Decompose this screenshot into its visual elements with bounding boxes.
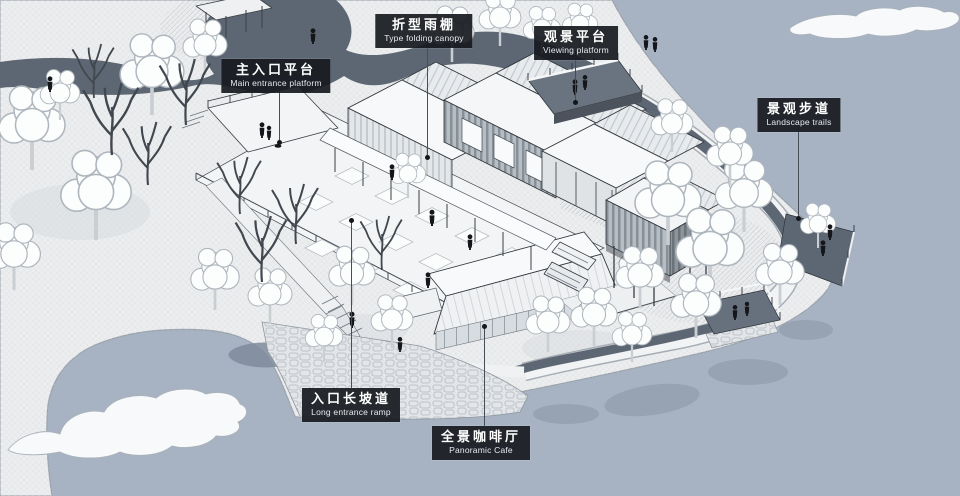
annotation-zh: 全景咖啡厅 [441, 429, 521, 445]
annotation-main-entrance-platform: 主入口平台 Main entrance platform [221, 59, 330, 93]
annotation-en: Landscape trails [766, 117, 831, 128]
annotation-landscape-trails: 景观步道 Landscape trails [757, 98, 840, 132]
annotation-panoramic-cafe: 全景咖啡厅 Panoramic Cafe [432, 426, 530, 460]
annotation-zh: 观景平台 [543, 29, 609, 45]
annotation-viewing-platform: 观景平台 Viewing platform [534, 26, 618, 60]
leader-line-canopy [427, 38, 428, 158]
annotation-en: Main entrance platform [230, 78, 321, 89]
annotation-folding-canopy: 折型雨棚 Type folding canopy [375, 14, 472, 48]
leader-line-ramp [351, 220, 352, 388]
site-illustration [0, 0, 960, 496]
site-diagram: 主入口平台 Main entrance platform 折型雨棚 Type f… [0, 0, 960, 496]
leader-line-cafe [484, 326, 485, 426]
leader-line-trails [798, 124, 799, 219]
annotation-zh: 入口长坡道 [311, 391, 391, 407]
annotation-en: Panoramic Cafe [441, 445, 521, 456]
annotation-zh: 主入口平台 [230, 62, 321, 78]
annotation-en: Viewing platform [543, 45, 609, 56]
annotation-en: Long entrance ramp [311, 407, 391, 418]
annotation-zh: 折型雨棚 [384, 17, 463, 33]
annotation-entrance-ramp: 入口长坡道 Long entrance ramp [302, 388, 400, 422]
annotation-en: Type folding canopy [384, 33, 463, 44]
leader-line-main-entrance [279, 85, 280, 143]
annotation-zh: 景观步道 [766, 101, 831, 117]
